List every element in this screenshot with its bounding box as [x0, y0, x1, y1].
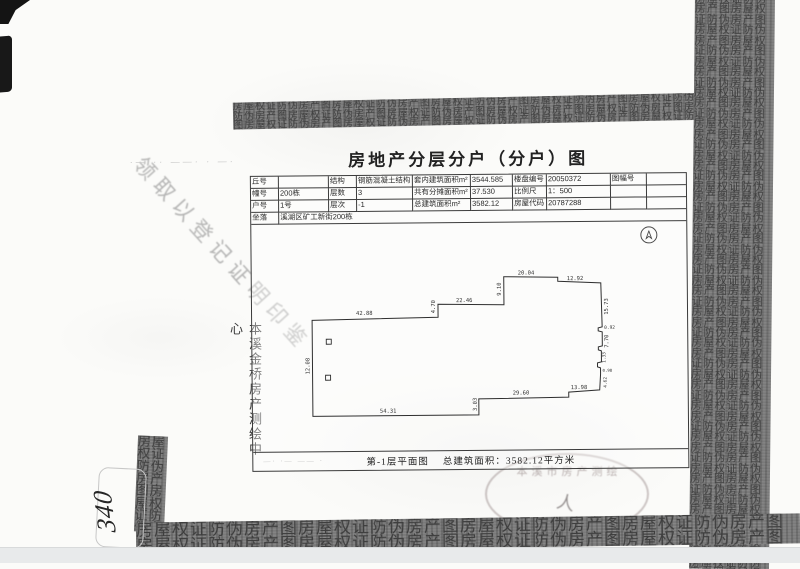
table-cell-label: 房屋代码: [513, 198, 547, 210]
table-cell-label: 共有分摊面积m²: [413, 187, 471, 200]
table-cell-label: 结构: [329, 176, 357, 188]
dimension-label: 54.31: [380, 409, 397, 415]
column-marker: [326, 339, 331, 344]
north-symbol: [640, 226, 657, 243]
column-marker: [326, 375, 331, 380]
table-cell-value: 1号: [279, 200, 329, 212]
photocopy-texture-band-top: 房屋权证防伪房产图房屋权证防伪房产图房屋权证防伪房产图房屋权证防伪房产图房屋权证…: [233, 91, 773, 129]
floor-plan-outline: [312, 276, 603, 417]
table-cell-label: 层次: [329, 200, 357, 212]
table-cell-label: 楼盘编号: [513, 174, 547, 186]
table-cell-value: 37.530: [471, 187, 513, 199]
caption-total-area: 总建筑面积：3582.12平方米: [443, 452, 576, 467]
table-cell-label: 层数: [329, 188, 357, 200]
table-cell-value: 3: [357, 187, 413, 199]
dimension-label: 0.98: [603, 368, 613, 373]
document-frame: 丘号 结构 钢筋混凝土结构 套内建筑面积m² 3544.585 楼盘编号 200…: [250, 172, 690, 472]
dimension-label: 12.92: [567, 276, 584, 282]
document-title: 房地产分层分户（分户）图: [250, 146, 687, 176]
dimension-label: 42.88: [356, 311, 373, 317]
dimension-label: 13.98: [571, 385, 588, 391]
caption-row: —· ·— —— · 第-1层平面图 总建筑面积：3582.12平方米: [253, 448, 688, 471]
dimension-label: 3.03: [473, 398, 479, 411]
faint-scribble: —· ·— —— ·: [263, 456, 324, 466]
scan-corner-artifact: [0, 0, 30, 24]
table-cell-label: 图幅号: [611, 173, 647, 185]
table-cell-value: 1：500: [547, 186, 611, 199]
table-cell-value: 钢筋混凝土结构: [357, 175, 413, 187]
table-cell-value: 3544.585: [471, 175, 513, 187]
table-cell-label: 总建筑面积m²: [413, 199, 471, 212]
table-cell-value: 20050372: [547, 174, 611, 187]
scanned-document-page: { "page": { "title": "房地产分层分户（分户）图", "ca…: [0, 0, 800, 563]
caption-floor-label: 第-1层平面图: [366, 453, 429, 468]
property-info-table: 丘号 结构 钢筋混凝土结构 套内建筑面积m² 3544.585 楼盘编号 200…: [251, 173, 686, 225]
table-cell-value: 200栋: [279, 188, 329, 200]
scanner-edge-strip: [0, 547, 800, 563]
table-cell-label-site: 坐落: [251, 213, 279, 225]
table-cell-label: [611, 185, 647, 197]
table-cell-label: 套内建筑面积m²: [413, 175, 471, 188]
dimension-label: 20.04: [518, 270, 535, 276]
dimension-label: 4.70: [431, 300, 437, 313]
dimension-label: 0.92: [604, 325, 615, 331]
table-cell-value: 3582.12: [471, 199, 513, 211]
north-arrow-icon: [644, 230, 653, 239]
floor-plan-area: 42.88 4.70 22.46 9.10 20.04 12.92 15.73 …: [251, 221, 688, 452]
dimension-label: 29.60: [513, 390, 530, 396]
faint-scribble: ·— ·· ——· · —·: [130, 155, 300, 166]
dimension-label: 7.70: [604, 335, 610, 348]
table-cell-value: [279, 176, 329, 188]
seal-center-mark: 人: [554, 487, 577, 516]
table-cell-value: 20787288: [547, 198, 611, 211]
dimension-label: 12.08: [305, 358, 311, 375]
floor-plan: 42.88 4.70 22.46 9.10 20.04 12.92 15.73 …: [251, 221, 690, 452]
table-cell-label: 丘号: [251, 177, 279, 189]
table-cell-label: 户号: [251, 201, 279, 213]
dimension-label: 22.46: [456, 298, 473, 304]
dimension-label: 4.62: [603, 377, 609, 388]
table-cell-value: [647, 185, 686, 197]
handwritten-page-number: 340: [87, 489, 123, 533]
scan-edge-artifact: [0, 35, 12, 92]
table-cell-label: 比例尺: [513, 186, 547, 198]
dimension-label: 1.33: [601, 352, 607, 363]
table-cell-value: [647, 173, 686, 185]
table-cell-value: -1: [357, 199, 413, 211]
table-cell-label: [611, 197, 647, 209]
table-cell-label: 幢号: [251, 189, 279, 201]
dimension-label: 15.73: [604, 298, 610, 315]
table-cell-value: [647, 197, 686, 209]
dimension-label: 9.10: [497, 282, 503, 295]
photocopy-texture-band-right: 房屋权证防伪房产图房屋权证防伪房产图房屋权证防伪房产图房屋权证防伪房产图房屋权证…: [689, 0, 775, 569]
floor-plan-document: ·— ·· ——· · —· 房地产分层分户（分户）图 丘号 结构 钢筋混凝土结…: [250, 146, 690, 472]
